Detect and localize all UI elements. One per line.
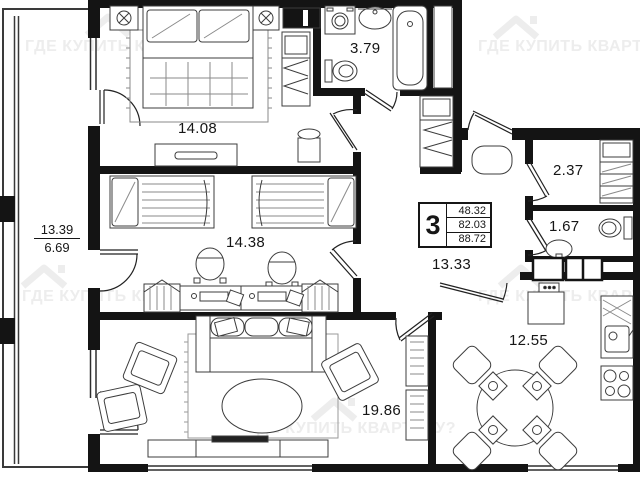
rooms-count: 3 [420,204,447,246]
window-kitchen-bottom [528,464,618,472]
living-area: 48.32 [447,204,490,217]
washing-machine [325,6,355,34]
door-bedroom-balcony [100,90,140,126]
wc-sink [546,240,572,258]
door-bedroom [330,110,357,150]
double-bed [143,6,253,108]
room-label-kids-room: 14.38 [226,234,265,251]
kids-bed-right [252,176,356,228]
room-label-living-room: 19.86 [362,402,401,419]
window-living-bottom [148,464,312,472]
tv-console [148,436,328,457]
bedroom-wardrobe [282,32,310,106]
office-chair-right [266,252,298,287]
balcony-area-full: 13.39 [34,222,80,239]
coffee-table-oval [222,379,302,433]
wardrobe-shelving [600,140,633,203]
bedroom-chair [298,129,320,162]
floor-plan-drawing [0,0,640,480]
door-entrance [468,111,512,134]
fridge [528,283,564,324]
hall-wardrobe [420,96,453,167]
vent-shaft-bedroom [283,8,320,28]
door-kids-balcony [100,250,138,291]
room-label-hallway: 13.33 [432,256,471,273]
kitchen-ducts [533,258,602,280]
room-label-bedroom: 14.08 [178,120,217,137]
apartment-info-box: 3 48.32 82.03 88.72 [418,202,492,248]
sofa [196,316,326,372]
nightstand-lamp-left [110,6,138,30]
room-label-kitchen: 12.55 [509,332,548,349]
nightstand-lamp-right [253,6,279,30]
hall-pouf [472,146,512,174]
kids-bed-left [110,176,214,228]
vent-shaft-hall [434,6,452,88]
kids-shelf-right [302,280,338,312]
apartment-area: 82.03 [447,217,490,231]
floor-plan: ГДЕ КУПИТЬ КВАРТИРУ? ГДЕ КУПИТЬ КВАРТИРУ… [0,0,640,480]
room-label-wardrobe: 2.37 [553,162,583,179]
room-label-wc: 1.67 [549,218,579,235]
bedroom-desk [155,144,237,166]
bathroom-sink [358,7,392,29]
balcony-area-coeff: 6.69 [34,239,80,255]
wc-toilet [599,217,632,239]
bathtub [393,6,427,90]
room-label-balcony: 13.39 6.69 [34,222,80,255]
armchair-right [320,342,380,402]
kitchen-sink-counter [601,296,633,358]
dining-table [477,370,553,446]
room-label-bathroom: 3.79 [350,40,380,57]
armchair-left-lower [96,384,147,432]
total-area: 88.72 [447,232,490,246]
living-shelving [406,336,428,440]
door-wardrobe-room [527,162,549,201]
kids-desk [180,286,304,310]
office-chair-left [194,248,226,283]
door-kids-room [330,241,357,279]
kitchen-stove [601,366,633,400]
kids-shelf-left [144,280,180,312]
door-kitchen [440,283,507,302]
door-bathroom [364,90,397,111]
bathroom-toilet [325,60,357,82]
